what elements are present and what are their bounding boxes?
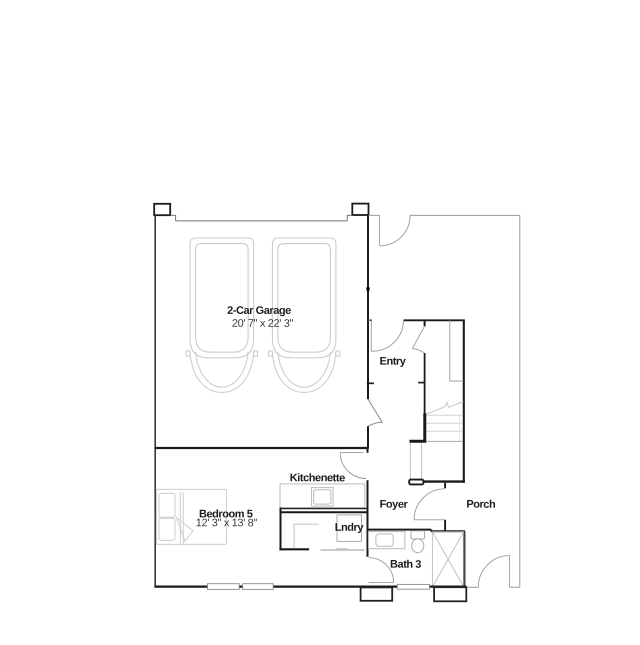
svg-text:Entry: Entry: [380, 356, 407, 368]
svg-text:Porch: Porch: [466, 499, 496, 511]
svg-text:Foyer: Foyer: [380, 499, 409, 511]
svg-text:20' 7" x 22' 3": 20' 7" x 22' 3": [232, 318, 294, 330]
svg-text:Kitchenette: Kitchenette: [290, 472, 345, 484]
svg-text:Bath 3: Bath 3: [390, 559, 421, 571]
svg-text:Lndry: Lndry: [335, 522, 365, 534]
svg-text:2-Car Garage: 2-Car Garage: [227, 305, 291, 317]
svg-text:12' 3" x 13' 8": 12' 3" x 13' 8": [196, 517, 258, 529]
